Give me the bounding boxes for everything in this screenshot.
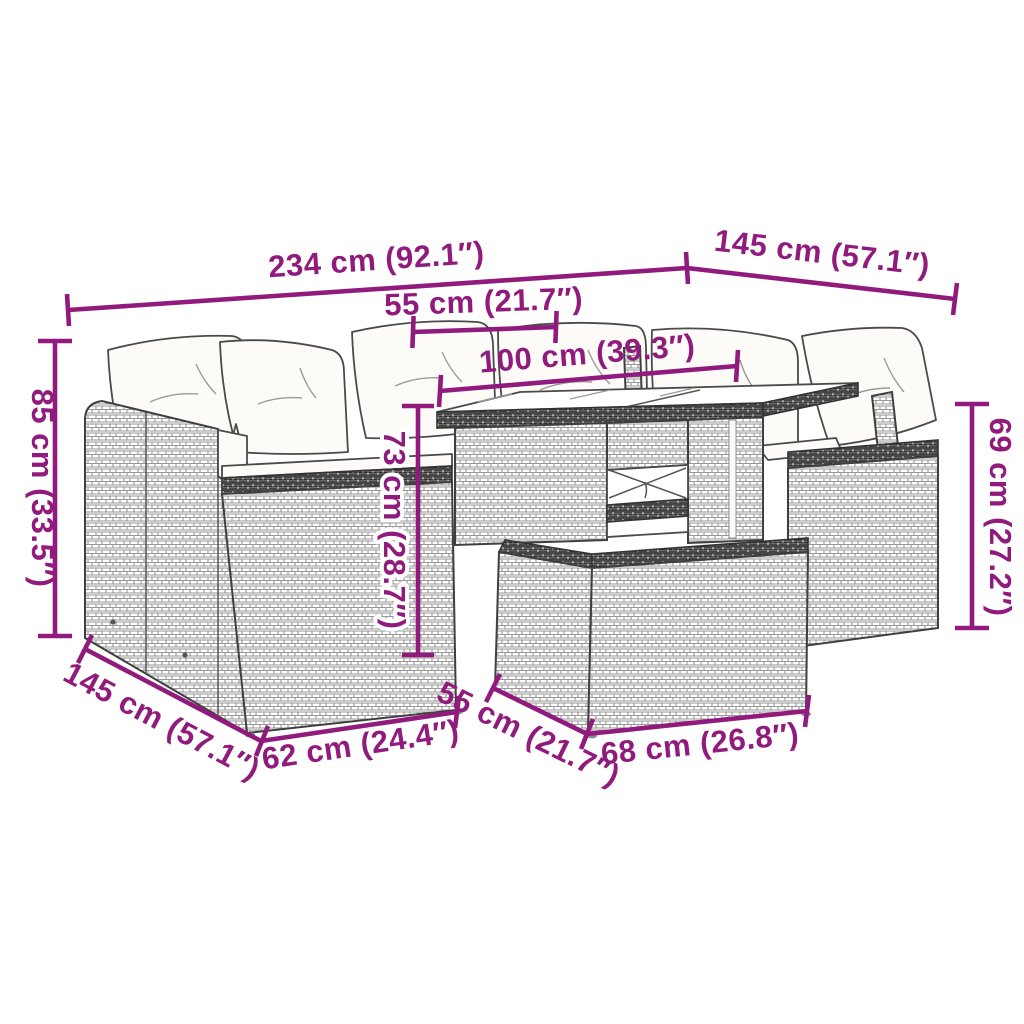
dim-label-back-height: 85 cm (33.5″) bbox=[25, 389, 60, 588]
dim-label-side-height: 69 cm (27.2″) bbox=[983, 418, 1018, 617]
dimension-right-depth: 145 cm (57.1″) bbox=[687, 223, 957, 315]
dimension-overall-width: 234 cm (92.1″) bbox=[67, 235, 688, 326]
dimension-side-height: 69 cm (27.2″) bbox=[955, 404, 1018, 628]
dimension-back-height: 85 cm (33.5″) bbox=[25, 341, 72, 636]
bench-line-art bbox=[495, 538, 808, 734]
dim-label-overall-width: 234 cm (92.1″) bbox=[267, 235, 485, 285]
dim-label-table-height: 73 cm (28.7″) bbox=[377, 431, 412, 630]
dim-label-table-top-width: 55 cm (21.7″) bbox=[384, 281, 584, 323]
diagram-canvas: 234 cm (92.1″) 145 cm (57.1″) 55 cm (21.… bbox=[0, 0, 1024, 1024]
product-dimension-diagram: 234 cm (92.1″) 145 cm (57.1″) 55 cm (21.… bbox=[0, 0, 1024, 1024]
